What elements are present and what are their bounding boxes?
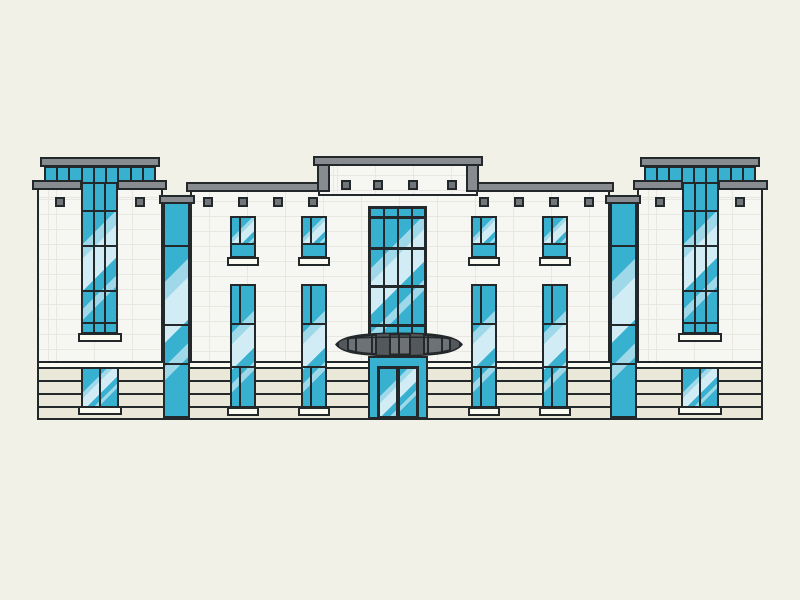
lower-window — [471, 284, 497, 408]
transom — [684, 210, 717, 212]
right-tower-shoulder-cap — [633, 180, 683, 190]
clerestory-pane — [695, 168, 705, 182]
mullion — [99, 369, 101, 406]
clerestory-pane — [107, 168, 117, 182]
window-sill — [298, 257, 330, 266]
facade-square — [273, 197, 283, 207]
mullion — [699, 369, 701, 406]
transom — [544, 366, 566, 368]
mullion — [411, 209, 413, 335]
mullion — [239, 218, 241, 243]
lower-window — [301, 284, 327, 408]
upper-window — [542, 216, 568, 258]
transom — [684, 290, 717, 292]
upper-window — [301, 216, 327, 258]
mullion — [480, 218, 482, 243]
transom — [165, 324, 188, 326]
entrance-double-door — [377, 366, 419, 419]
canopy-segments — [339, 330, 459, 359]
mullion — [397, 209, 399, 335]
ground-floor-window — [681, 367, 719, 408]
mullion — [705, 184, 707, 332]
mullion — [480, 368, 482, 406]
raised-coping-top — [313, 156, 483, 166]
right-tower-shoulder-cap — [718, 180, 768, 190]
parapet-square — [408, 180, 418, 190]
mullion — [480, 286, 482, 323]
curtain-wall — [368, 206, 427, 338]
parapet-coping-left — [186, 182, 319, 192]
parapet-coping-right — [477, 182, 614, 192]
transom — [371, 216, 424, 219]
transom — [544, 323, 566, 325]
transom — [165, 363, 188, 365]
left-tower-shoulder-cap — [117, 180, 167, 190]
facade-square — [308, 197, 318, 207]
transom — [83, 322, 116, 324]
window-sill — [539, 257, 571, 266]
mullion — [551, 368, 553, 406]
mullion — [239, 368, 241, 406]
transom — [612, 324, 635, 326]
ground-floor-window — [81, 367, 119, 408]
facade-square — [735, 197, 745, 207]
transom — [303, 366, 325, 368]
facade-square — [203, 197, 213, 207]
facade-square — [55, 197, 65, 207]
transom — [165, 245, 188, 247]
mullion — [551, 218, 553, 243]
clerestory-pane — [683, 168, 693, 182]
window-sill — [227, 257, 259, 266]
spandrel-panel — [473, 245, 495, 256]
spandrel-panel — [544, 245, 566, 256]
facade-square — [135, 197, 145, 207]
mullion — [383, 209, 385, 335]
transom — [371, 324, 424, 327]
window-sill — [468, 407, 500, 416]
spandrel-panel — [232, 245, 254, 256]
transom — [684, 322, 717, 324]
window-sill — [227, 407, 259, 416]
facade-square — [514, 197, 524, 207]
left-tower-glass-strip — [81, 182, 118, 334]
window-sill — [539, 407, 571, 416]
mullion — [694, 184, 696, 332]
right-tower-strip-sill — [678, 333, 722, 342]
mullion — [93, 184, 95, 332]
window-sill — [298, 407, 330, 416]
facade-square — [238, 197, 248, 207]
building-illustration — [0, 0, 800, 600]
left-tower-shoulder-cap — [32, 180, 82, 190]
transom — [684, 245, 717, 247]
right-glass-strip — [610, 202, 637, 418]
parapet-square — [447, 180, 457, 190]
window-sill — [678, 406, 722, 415]
clerestory-pane — [707, 168, 717, 182]
transom — [473, 366, 495, 368]
mullion — [551, 286, 553, 323]
clerestory-pane — [95, 168, 105, 182]
transom — [83, 210, 116, 212]
transom — [473, 323, 495, 325]
facade-square — [584, 197, 594, 207]
transom — [612, 245, 635, 247]
transom — [303, 323, 325, 325]
facade-square — [479, 197, 489, 207]
window-sill — [468, 257, 500, 266]
parapet-square — [373, 180, 383, 190]
right-tower-glass-strip — [682, 182, 719, 334]
parapet-square — [341, 180, 351, 190]
entrance-canopy — [332, 330, 466, 359]
facade-square — [549, 197, 559, 207]
facade-square — [655, 197, 665, 207]
left-glass-strip — [163, 202, 190, 418]
door-stile — [396, 369, 400, 416]
transom — [371, 247, 424, 250]
transom — [232, 323, 254, 325]
transom — [83, 245, 116, 247]
transom — [371, 285, 424, 288]
clerestory-pane — [83, 168, 93, 182]
transom — [612, 363, 635, 365]
window-sill — [78, 406, 122, 415]
upper-window — [230, 216, 256, 258]
transom — [83, 290, 116, 292]
lower-window — [230, 284, 256, 408]
mullion — [104, 184, 106, 332]
lower-window — [542, 284, 568, 408]
spandrel-panel — [303, 245, 325, 256]
mullion — [310, 218, 312, 243]
mullion — [310, 286, 312, 323]
left-tower-strip-sill — [78, 333, 122, 342]
mullion — [310, 368, 312, 406]
upper-window — [471, 216, 497, 258]
transom — [232, 366, 254, 368]
mullion — [239, 286, 241, 323]
